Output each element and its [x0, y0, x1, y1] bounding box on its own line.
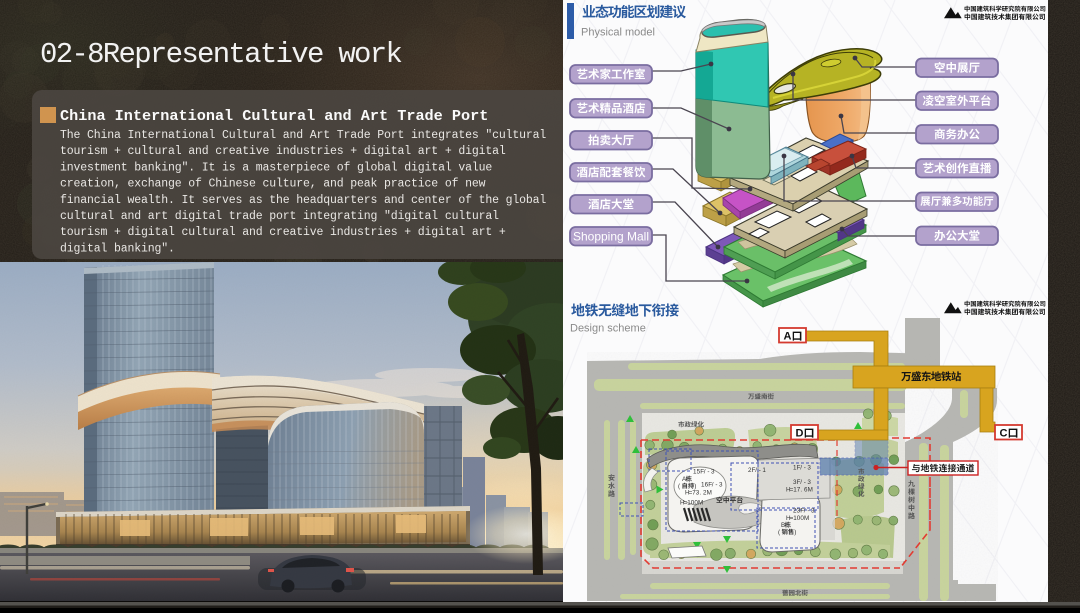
- svg-text:3: 3: [711, 468, 715, 475]
- svg-text:/: /: [800, 479, 802, 486]
- svg-text:1: 1: [762, 467, 766, 474]
- svg-text:cultural and art digital trade: cultural and art digital trade port inte…: [60, 210, 499, 223]
- svg-text:-: -: [807, 507, 809, 514]
- svg-text:3: 3: [807, 464, 811, 471]
- svg-text:financial wealth. It serves a: financial wealth. It serves as the headq…: [60, 194, 546, 207]
- svg-text:tourism + cultural and creativ: tourism + cultural and creative industri…: [60, 145, 506, 158]
- svg-text:M: M: [808, 486, 813, 493]
- svg-text:C: C: [1000, 428, 1008, 440]
- svg-text:-: -: [759, 467, 761, 474]
- svg-text:Shopping Mall: Shopping Mall: [573, 230, 649, 244]
- svg-text:investment banking". It is a: investment banking". It is a masterpiece…: [60, 161, 492, 174]
- svg-text:M: M: [707, 489, 712, 496]
- svg-text:/: /: [704, 468, 706, 475]
- svg-text:): ): [794, 529, 796, 536]
- svg-text:3: 3: [719, 481, 723, 488]
- svg-text:-: -: [804, 464, 806, 471]
- svg-text:B: B: [781, 522, 785, 529]
- svg-text:Design scheme: Design scheme: [570, 323, 646, 335]
- svg-text:M: M: [698, 499, 703, 506]
- svg-text:digital banking".: digital banking".: [60, 242, 175, 255]
- svg-text:.: .: [699, 489, 701, 496]
- svg-text:Physical model: Physical model: [581, 27, 655, 39]
- svg-text:-: -: [804, 479, 806, 486]
- svg-text:A: A: [784, 331, 792, 343]
- svg-text:creation, exchange of Chinese: creation, exchange of Chinese culture, a…: [60, 178, 486, 191]
- svg-text:-: -: [715, 481, 717, 488]
- svg-text:/: /: [712, 481, 714, 488]
- svg-text:/: /: [804, 507, 806, 514]
- svg-text:/: /: [755, 467, 757, 474]
- svg-text:China International Cultural a: China International Cultural and Art Tra…: [60, 107, 488, 125]
- svg-text:M: M: [804, 515, 809, 522]
- svg-text:.: .: [800, 486, 802, 493]
- svg-text:3: 3: [807, 479, 811, 486]
- svg-text:3: 3: [811, 507, 815, 514]
- svg-text:/: /: [800, 464, 802, 471]
- svg-text:D: D: [796, 428, 804, 440]
- svg-text:-: -: [707, 468, 709, 475]
- svg-text:The China International Cultur: The China International Cultural and Art…: [60, 129, 546, 142]
- svg-text:tourism + digital cultural and: tourism + digital cultural and creative …: [60, 226, 506, 239]
- svg-text:02-8Representative work: 02-8Representative work: [40, 38, 401, 71]
